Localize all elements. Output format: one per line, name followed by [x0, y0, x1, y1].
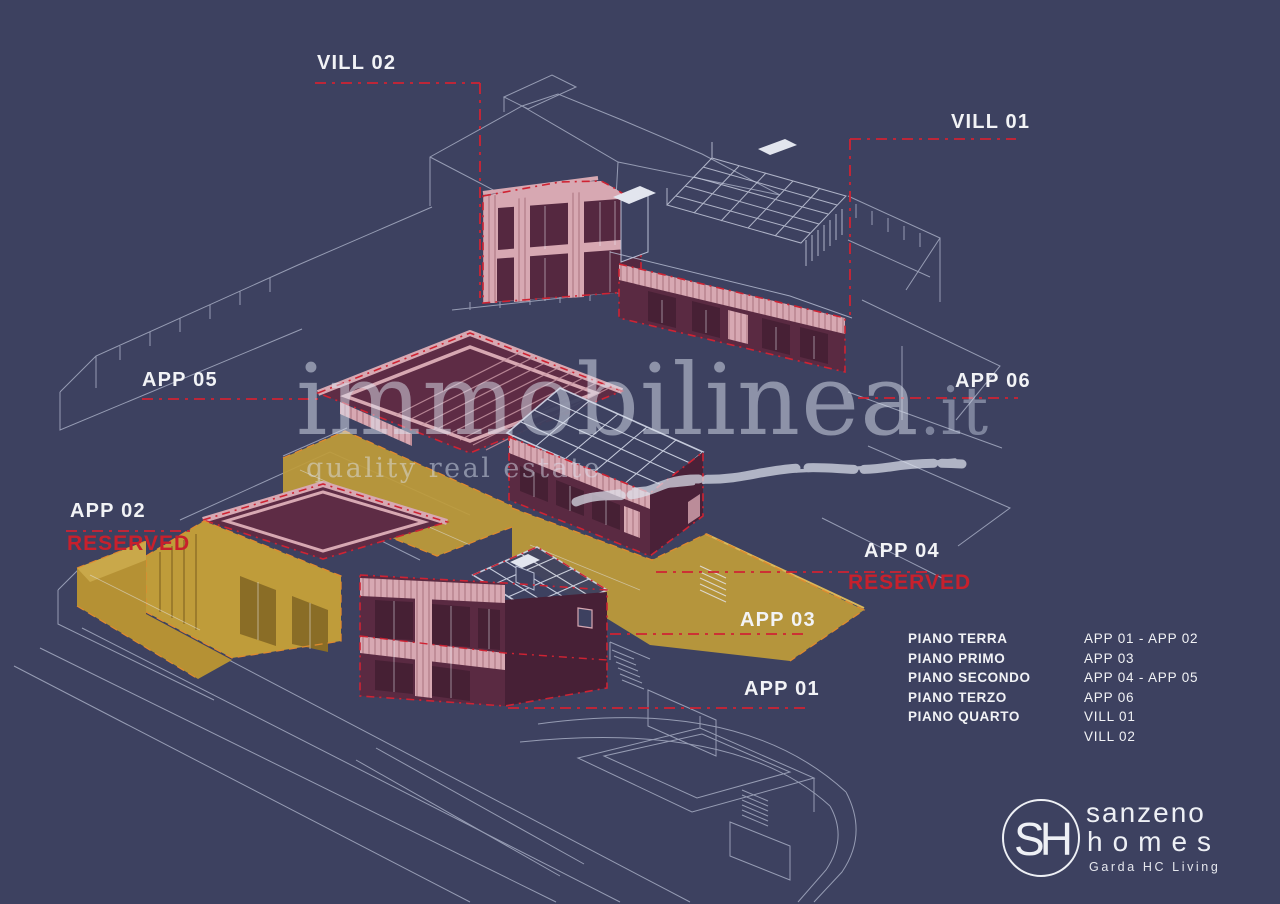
legend-row: PIANO PRIMO APP 03	[908, 649, 1198, 669]
legend-row: PIANO TERZO APP 06	[908, 688, 1198, 708]
label-app-06: APP 06	[955, 371, 1031, 391]
label-app-03: APP 03	[740, 610, 816, 630]
legend-floor: PIANO SECONDO	[908, 668, 1084, 688]
legend-floor: PIANO PRIMO	[908, 649, 1084, 669]
legend-row: PIANO QUARTO VILL 01	[908, 707, 1198, 727]
legend-units: APP 04 - APP 05	[1084, 668, 1198, 688]
leader-vill-01	[850, 139, 1016, 315]
building-vill-01	[610, 139, 852, 372]
company-logo: SH sanzeno homes Garda HC Living	[1002, 797, 1242, 889]
legend-units: APP 01 - APP 02	[1084, 629, 1198, 649]
legend-row: VILL 02	[908, 727, 1198, 747]
site-axonometric-drawing	[0, 0, 1280, 904]
label-app-04: APP 04	[864, 541, 940, 561]
legend-units: APP 06	[1084, 688, 1134, 708]
logo-monogram: SH	[1014, 816, 1068, 862]
label-vill-01: VILL 01	[951, 112, 1030, 132]
legend-row: PIANO TERRA APP 01 - APP 02	[908, 629, 1198, 649]
building-app-01-03	[360, 547, 607, 706]
brochure-page: immobilinea .it quality real estate VILL…	[0, 0, 1280, 904]
legend-floor: PIANO TERRA	[908, 629, 1084, 649]
status-reserved-app-02: RESERVED	[67, 533, 190, 554]
label-app-05: APP 05	[142, 370, 218, 390]
label-app-01: APP 01	[744, 679, 820, 699]
legend-row: PIANO SECONDO APP 04 - APP 05	[908, 668, 1198, 688]
legend-units: APP 03	[1084, 649, 1134, 669]
logo-tagline: Garda HC Living	[1089, 861, 1220, 874]
status-reserved-app-04: RESERVED	[848, 572, 971, 593]
logo-name-line2: homes	[1087, 828, 1221, 856]
legend-floor: PIANO QUARTO	[908, 707, 1084, 727]
label-app-02: APP 02	[70, 501, 146, 521]
legend-floor: PIANO TERZO	[908, 688, 1084, 708]
logo-ring: SH	[1002, 799, 1080, 877]
legend-units: VILL 02	[1084, 727, 1136, 747]
label-vill-02: VILL 02	[317, 53, 396, 73]
legend-units: VILL 01	[1084, 707, 1136, 727]
leader-vill-02	[315, 83, 480, 298]
floors-legend: PIANO TERRA APP 01 - APP 02 PIANO PRIMO …	[908, 629, 1198, 746]
legend-floor	[908, 727, 1084, 747]
logo-name-line1: sanzeno	[1086, 799, 1206, 827]
